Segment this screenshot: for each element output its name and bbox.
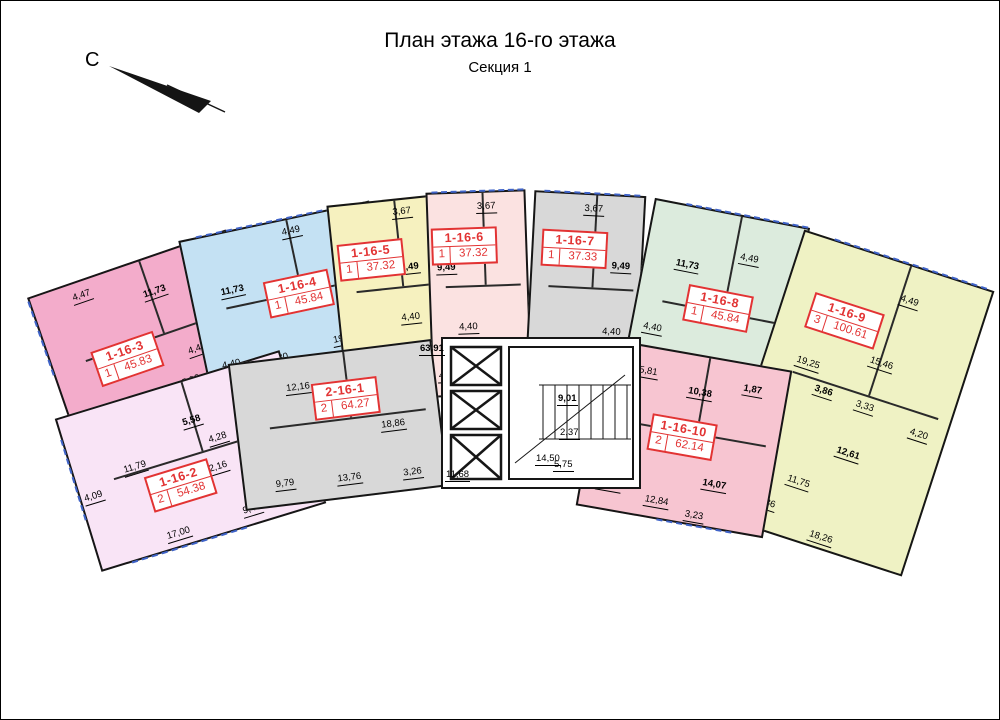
dim-label: 3,86: [812, 382, 835, 401]
dim-label: 4,40: [458, 321, 479, 335]
balcony-line: [60, 440, 86, 521]
dim-label: 3,33: [853, 398, 876, 417]
balcony-line: [27, 301, 54, 375]
dim-label: 2,37: [559, 427, 580, 440]
apartment-label: 1-16-6 137.32: [431, 226, 498, 265]
balcony-line: [431, 188, 523, 193]
apartment-rooms: 1: [543, 248, 561, 264]
dim-label: 9,49: [610, 260, 631, 274]
dim-label: 12,16: [285, 380, 312, 396]
apartment-label: 1-16-3 145.83: [90, 331, 164, 387]
apartment-area: 37.33: [560, 249, 606, 267]
apartment-label: 1-16-9 3100.61: [804, 292, 884, 349]
dim-label: 5,75: [553, 459, 574, 472]
dim-label: 11,68: [445, 469, 470, 482]
apartment-rooms: 2: [315, 401, 334, 418]
floor-plan-sheet: План этажа 16-го этажа Секция 1 С 4,47 1…: [0, 0, 1000, 720]
dim-label: 11,73: [219, 282, 246, 300]
north-indicator: С: [85, 53, 215, 113]
dim-label: 4,40: [400, 311, 422, 326]
dim-label: 5,58: [180, 412, 203, 430]
dim-label: 12,84: [643, 493, 671, 510]
dim-label: 11,75: [784, 472, 812, 492]
apartment-label: 1-16-5 137.32: [337, 238, 407, 281]
dim-label: 4,28: [206, 429, 229, 447]
dim-label: 4,09: [82, 488, 105, 506]
dim-label: 15,46: [867, 354, 895, 374]
apartment-label: 2-16-1 264.27: [311, 376, 381, 420]
stair-elevator-core: [441, 337, 641, 489]
north-arrow-icon: [107, 63, 227, 115]
dim-label: 3,67: [391, 205, 413, 220]
dim-label: 18,26: [806, 528, 834, 548]
dim-label: 9,79: [274, 477, 296, 492]
apartment-label: 1-16-8 145.84: [682, 284, 754, 333]
apartment-area: 37.32: [358, 258, 404, 278]
balcony-line: [544, 190, 640, 197]
apartment-label: 1-16-2 254.38: [144, 458, 218, 512]
dim-label: 17,00: [165, 524, 193, 544]
dim-label: 4,49: [738, 251, 761, 268]
apartment-number: 1-16-6: [433, 228, 496, 248]
apartment-rooms: 1: [433, 247, 451, 263]
dim-label: 4,40: [641, 320, 664, 337]
dim-label: 10,38: [686, 385, 714, 402]
north-label: С: [85, 49, 99, 72]
dim-label: 18,86: [380, 417, 407, 433]
apartment-label: 1-16-7 137.33: [541, 229, 609, 269]
dim-label: 13,76: [336, 471, 363, 487]
dim-label: 11,79: [121, 458, 149, 478]
dim-label: 4,47: [70, 287, 94, 306]
dim-label: 4,49: [898, 293, 921, 312]
dim-label: 12,61: [834, 444, 862, 464]
apartment-area: 37.32: [451, 246, 496, 263]
dim-label: 14,07: [700, 477, 728, 494]
dim-label: 3,67: [583, 203, 604, 217]
balcony-line: [834, 238, 987, 289]
apartment-2-16-1: 12,16 18,86 13,76 3,26 9,79 2-16-1 264.2…: [228, 339, 450, 511]
balcony-line: [686, 203, 808, 229]
dim-label: 9,01: [557, 393, 578, 406]
apartment-label: 1-16-10 262.14: [646, 413, 718, 461]
dim-label: 63,91: [419, 343, 445, 356]
apartment-rooms: 1: [341, 262, 360, 279]
dim-label: 19,25: [794, 353, 822, 373]
dim-label: 1,87: [741, 382, 763, 398]
dim-label: 3,23: [683, 508, 705, 524]
page-title: План этажа 16-го этажа: [1, 29, 999, 53]
dim-label: 11,73: [141, 282, 169, 302]
dim-label: 3,26: [402, 465, 424, 480]
dim-label: 11,73: [674, 257, 701, 274]
dim-label: 3,67: [476, 200, 497, 214]
apartment-label: 1-16-4 145.84: [263, 269, 335, 319]
dim-label: 4,49: [280, 223, 303, 240]
dim-label: 4,20: [907, 426, 930, 445]
